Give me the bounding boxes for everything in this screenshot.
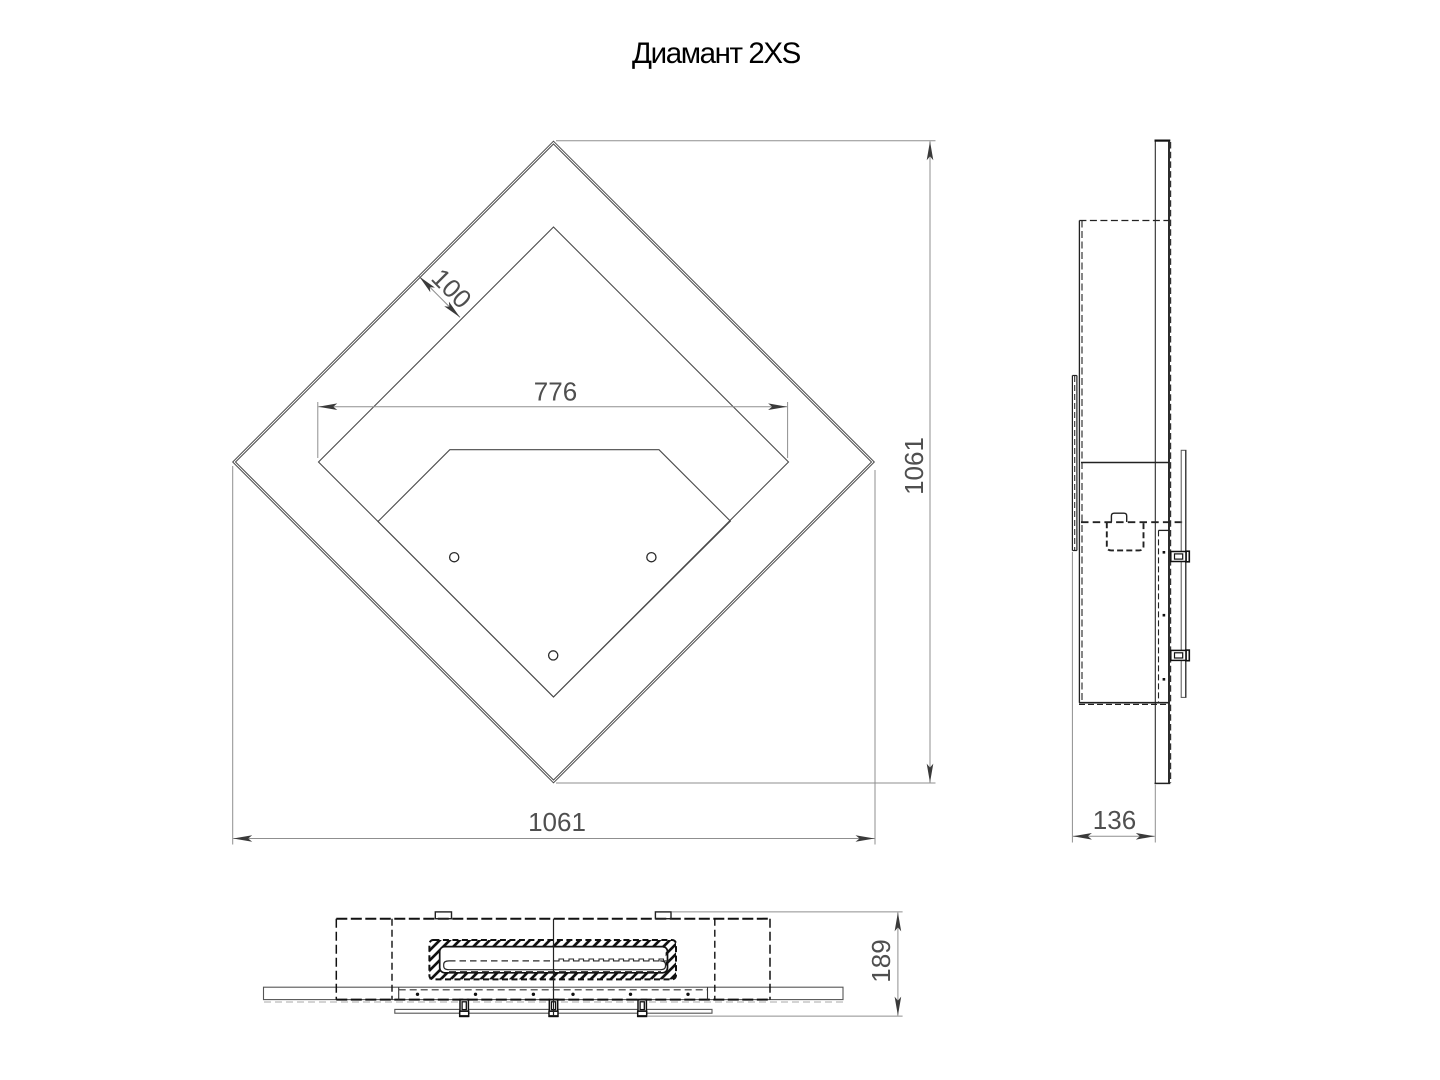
- svg-text:1061: 1061: [899, 437, 929, 495]
- svg-text:189: 189: [866, 939, 896, 982]
- svg-text:Диамант 2XS: Диамант 2XS: [632, 37, 801, 70]
- svg-text:776: 776: [534, 377, 577, 407]
- svg-text:1061: 1061: [528, 807, 586, 837]
- svg-text:136: 136: [1093, 805, 1136, 835]
- svg-text:100: 100: [426, 262, 478, 314]
